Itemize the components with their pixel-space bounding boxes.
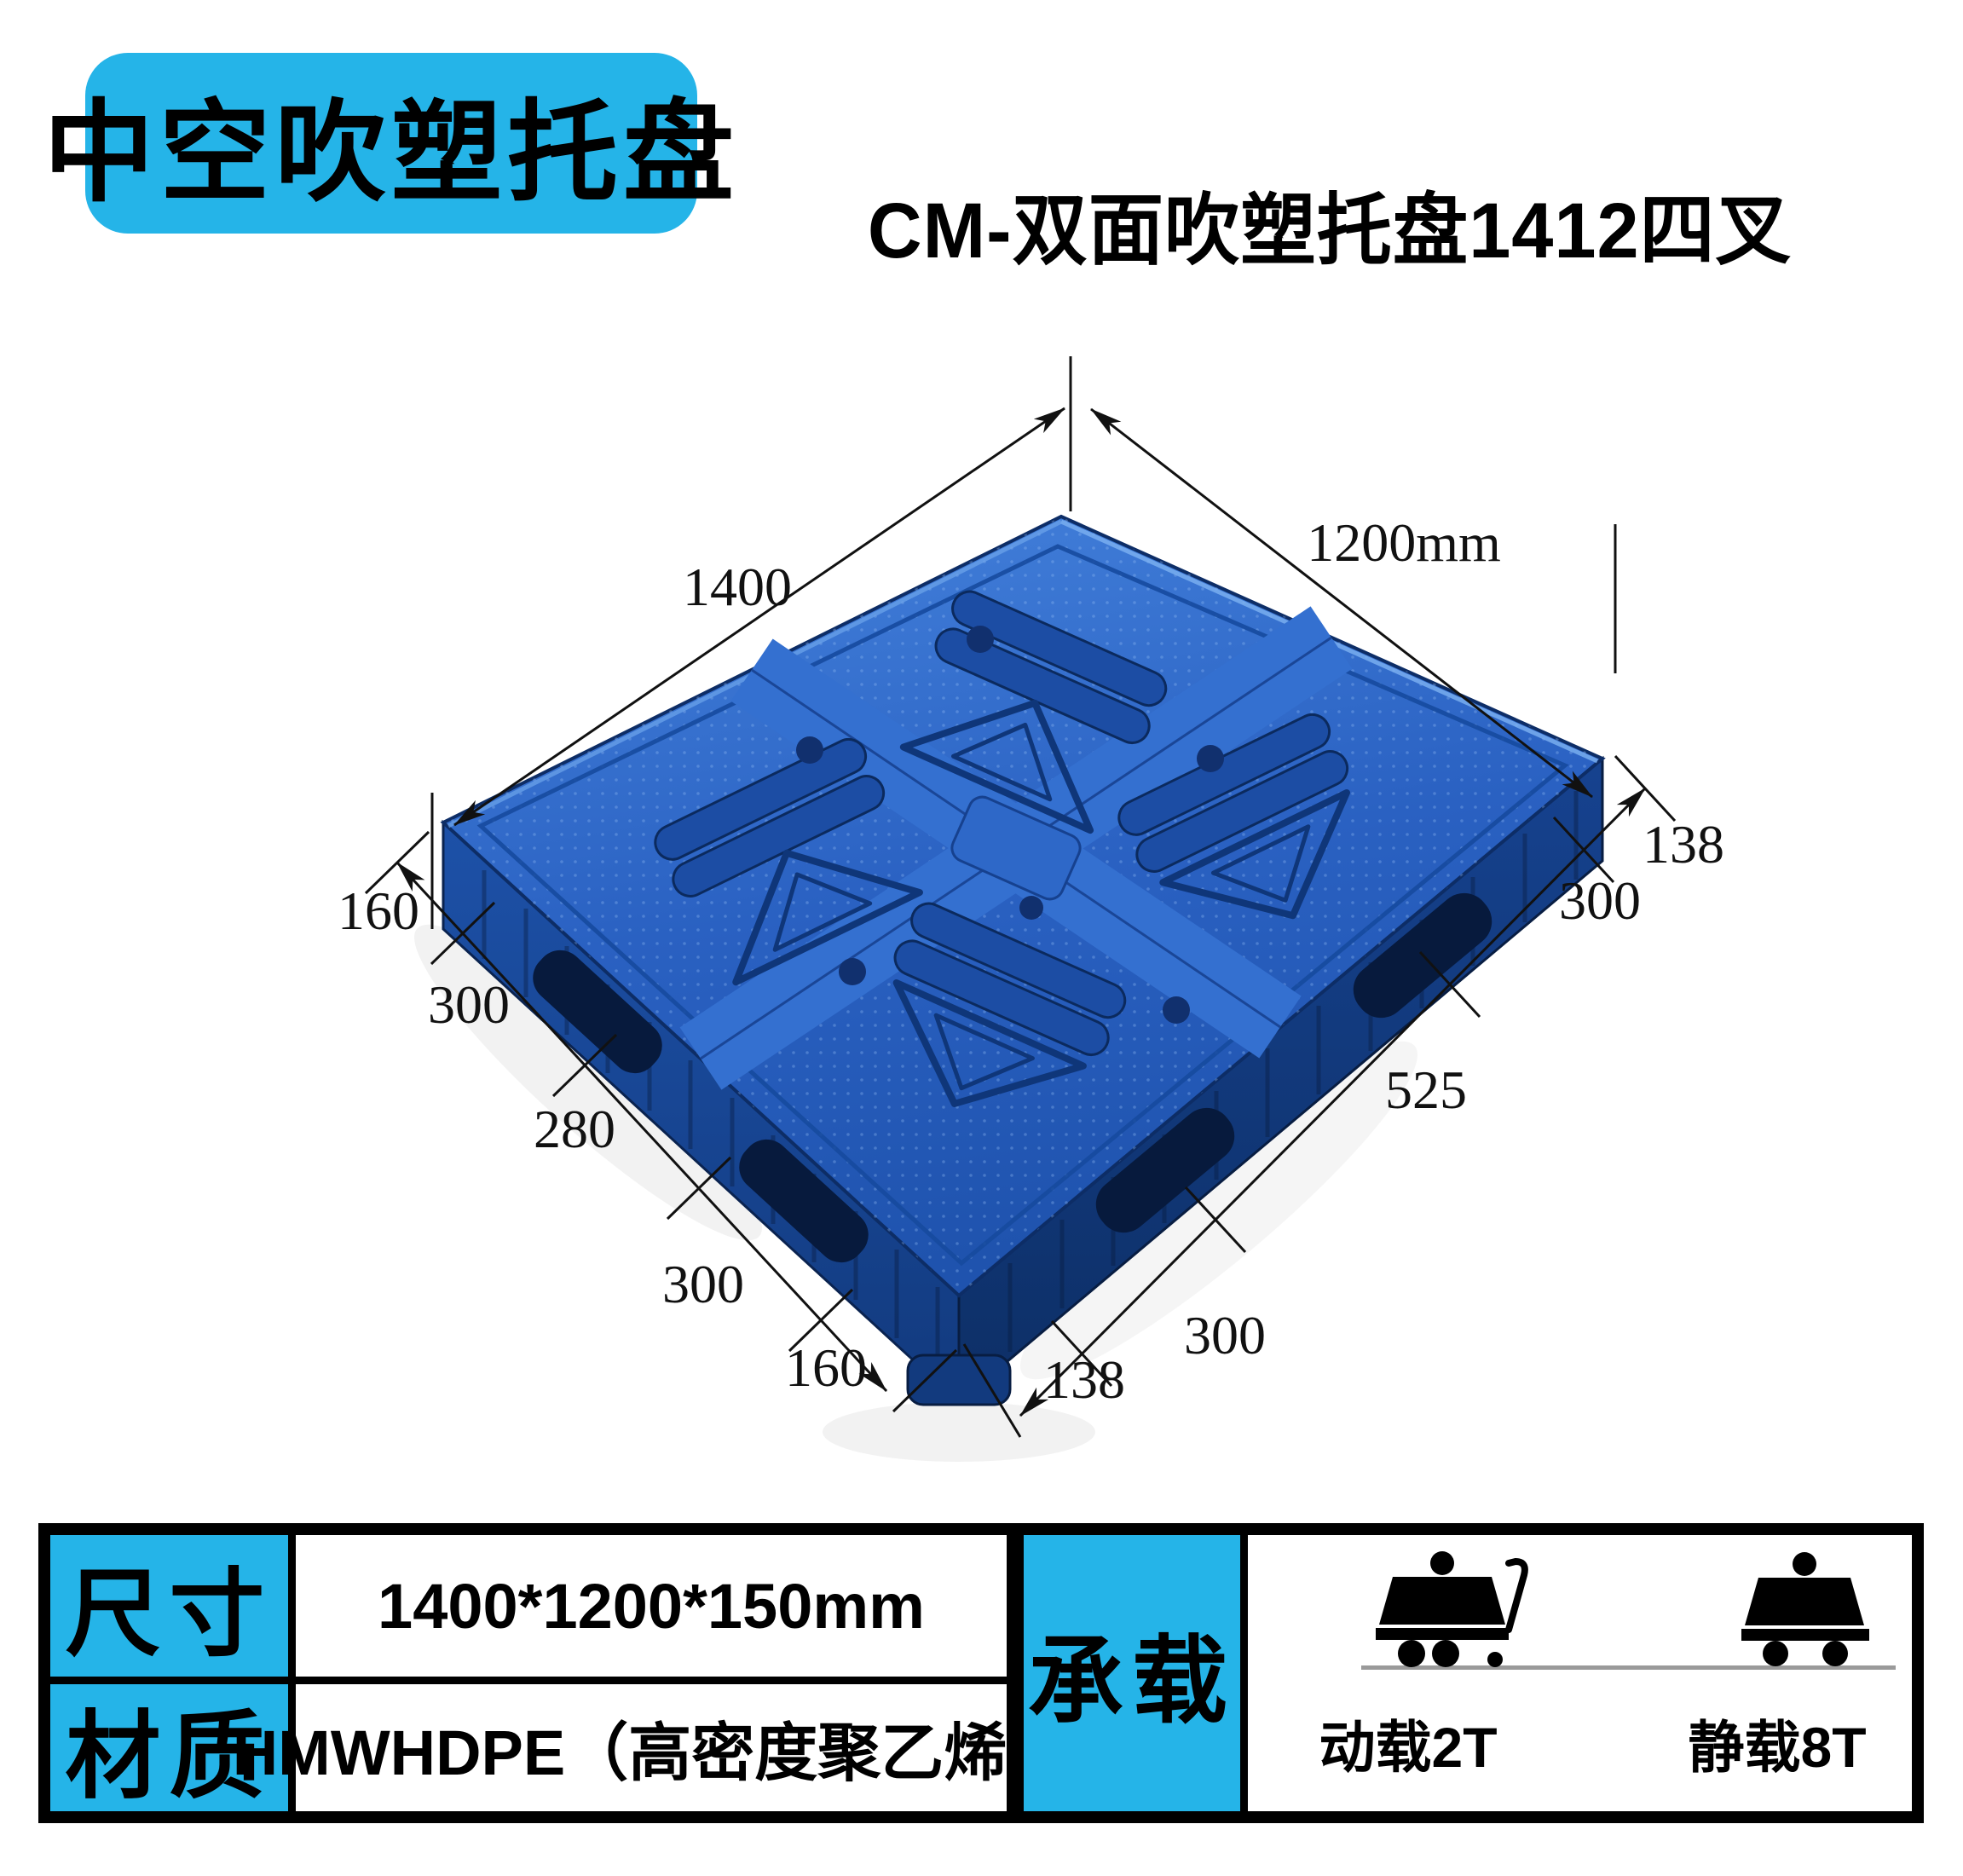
spec-table: 尺寸 1400*1200*150mm 材质 HMWHDPE（高密度聚乙烯） 承载 <box>38 1523 1924 1823</box>
dim-label-right-2: 525 <box>1385 1059 1467 1120</box>
dim-line-1400 <box>454 408 1065 825</box>
pallet-photo <box>443 517 1602 1405</box>
page-title: CM-双面吹塑托盘1412四叉 <box>839 167 1821 280</box>
dim-label-1400: 1400 <box>683 557 792 617</box>
product-spec-sheet: 中空吹塑托盘 CM-双面吹塑托盘1412四叉 <box>0 0 1963 1876</box>
badge-label: 中空吹塑托盘 <box>43 63 739 223</box>
deck-panel-left <box>650 734 931 988</box>
dim-label-left-1: 300 <box>428 974 510 1035</box>
dim-label-1200: 1200mm <box>1307 512 1501 573</box>
pallet-shadow <box>386 893 1448 1462</box>
static-load-label: 静载8T <box>1688 1716 1866 1779</box>
dynamic-load-label: 动载2T <box>1319 1716 1497 1779</box>
dim-label-left-4: 160 <box>785 1337 867 1398</box>
dim-line-left-chain <box>397 863 886 1391</box>
dim-line-1200 <box>1091 409 1592 797</box>
pallet-truck-icon <box>1376 1551 1525 1667</box>
deck-panel-right <box>1113 709 1396 967</box>
load-capacity-cell: 动载2T 静载8T <box>1248 1535 1912 1811</box>
dim-label-right-1: 300 <box>1559 870 1641 931</box>
material-value-text: HMWHDPE（高密度聚乙烯） <box>233 1702 1071 1793</box>
deck-panel-bottom <box>849 898 1130 1151</box>
spec-row-material-value: HMWHDPE（高密度聚乙烯） <box>296 1684 1007 1811</box>
wall-ribs <box>484 791 1576 1376</box>
dim-label-right-4: 138 <box>1043 1349 1125 1410</box>
static-load-icon <box>1741 1552 1869 1666</box>
dim-label-right-0: 138 <box>1643 814 1724 875</box>
dim-label-right-3: 300 <box>1184 1305 1266 1365</box>
dim-label-left-2: 280 <box>534 1099 615 1159</box>
size-value-text: 1400*1200*150mm <box>378 1570 925 1642</box>
dimension-annotations: 1400 1200mm 160 300 280 300 160 <box>338 356 1724 1437</box>
spec-row-size-value: 1400*1200*150mm <box>296 1535 1007 1684</box>
left-chain-ticks <box>366 832 956 1411</box>
load-capacity-graphic: 动载2T 静载8T <box>1248 1535 1912 1811</box>
dim-label-left-0: 160 <box>338 880 419 941</box>
right-chain-ticks <box>964 756 1675 1437</box>
dim-line-right-chain <box>1020 788 1645 1416</box>
fork-openings <box>523 883 1503 1273</box>
load-capacity-label: 承载 <box>1007 1535 1248 1811</box>
deck-holes <box>796 626 1224 1024</box>
dim-label-left-3: 300 <box>662 1254 744 1314</box>
product-category-badge: 中空吹塑托盘 <box>85 53 697 234</box>
deck-panel-top <box>892 586 1171 836</box>
spec-row-size-label: 尺寸 <box>50 1535 296 1684</box>
